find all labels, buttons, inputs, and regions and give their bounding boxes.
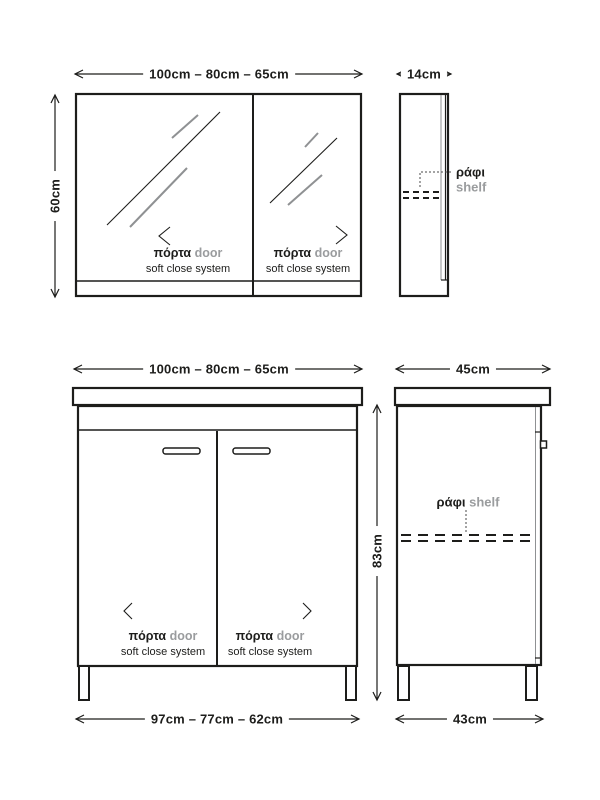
vanity-front-view bbox=[73, 388, 362, 700]
vanity-base-depth-dimension-label: 43cm bbox=[447, 713, 493, 726]
chevron-left-icon bbox=[124, 603, 132, 619]
vanity-height-dimension-label: 83cm bbox=[371, 526, 384, 576]
shelf-leader-line bbox=[420, 172, 451, 189]
cabinet-leg bbox=[346, 666, 356, 700]
door-handle bbox=[233, 448, 270, 454]
shelf-dashed-lines bbox=[401, 535, 533, 541]
mirror-glare-lines-left bbox=[107, 112, 220, 227]
mirror-left-door-label: πόρτα door soft close system bbox=[146, 244, 230, 276]
vanity-top-depth-dimension-label: 45cm bbox=[450, 363, 496, 376]
cabinet-leg bbox=[526, 666, 537, 700]
cabinet-leg bbox=[79, 666, 89, 700]
diagram-linework bbox=[0, 0, 600, 800]
vanity-side-view bbox=[395, 388, 550, 700]
furniture-dimension-diagram: 100cm – 80cm – 65cm 60cm 14cm πόρτα door… bbox=[0, 0, 600, 800]
vanity-right-door-label: πόρτα door soft close system bbox=[228, 627, 312, 659]
chevron-right-icon bbox=[303, 603, 311, 619]
vanity-base-width-dimension-label: 97cm – 77cm – 62cm bbox=[145, 713, 289, 726]
mirror-shelf-label: ράφι bbox=[456, 166, 485, 179]
shelf-dashed-lines bbox=[403, 192, 439, 198]
chevron-left-icon bbox=[159, 227, 170, 245]
mirror-width-dimension-label: 100cm – 80cm – 65cm bbox=[143, 68, 295, 81]
mirror-right-door-label: πόρτα door soft close system bbox=[266, 244, 350, 276]
mirror-depth-dimension-label: 14cm bbox=[401, 68, 447, 81]
chevron-right-icon bbox=[336, 226, 347, 244]
vanity-width-dimension-label: 100cm – 80cm – 65cm bbox=[143, 363, 295, 376]
mirror-height-dimension-label: 60cm bbox=[49, 171, 62, 221]
vanity-left-door-label: πόρτα door soft close system bbox=[121, 627, 205, 659]
mirror-side-view bbox=[400, 94, 451, 296]
door-handle bbox=[163, 448, 200, 454]
vanity-shelf-label: ράφι shelf bbox=[437, 496, 500, 509]
mirror-glare-lines-right bbox=[270, 133, 337, 205]
door-handle bbox=[541, 441, 547, 448]
mirror-shelf-label-en: shelf bbox=[456, 181, 486, 194]
cabinet-leg bbox=[398, 666, 409, 700]
